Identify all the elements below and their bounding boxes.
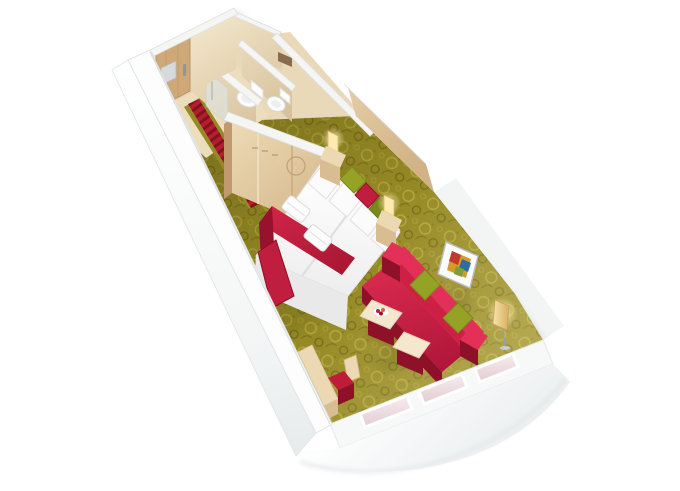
lamp-base bbox=[500, 346, 510, 350]
cabin-floor-plan-page bbox=[0, 0, 680, 491]
door-handle bbox=[183, 64, 186, 76]
wardrobe-side bbox=[224, 118, 232, 199]
cabin-floor-plan-render bbox=[0, 0, 680, 491]
fruit bbox=[379, 312, 383, 316]
fruit bbox=[381, 308, 385, 312]
